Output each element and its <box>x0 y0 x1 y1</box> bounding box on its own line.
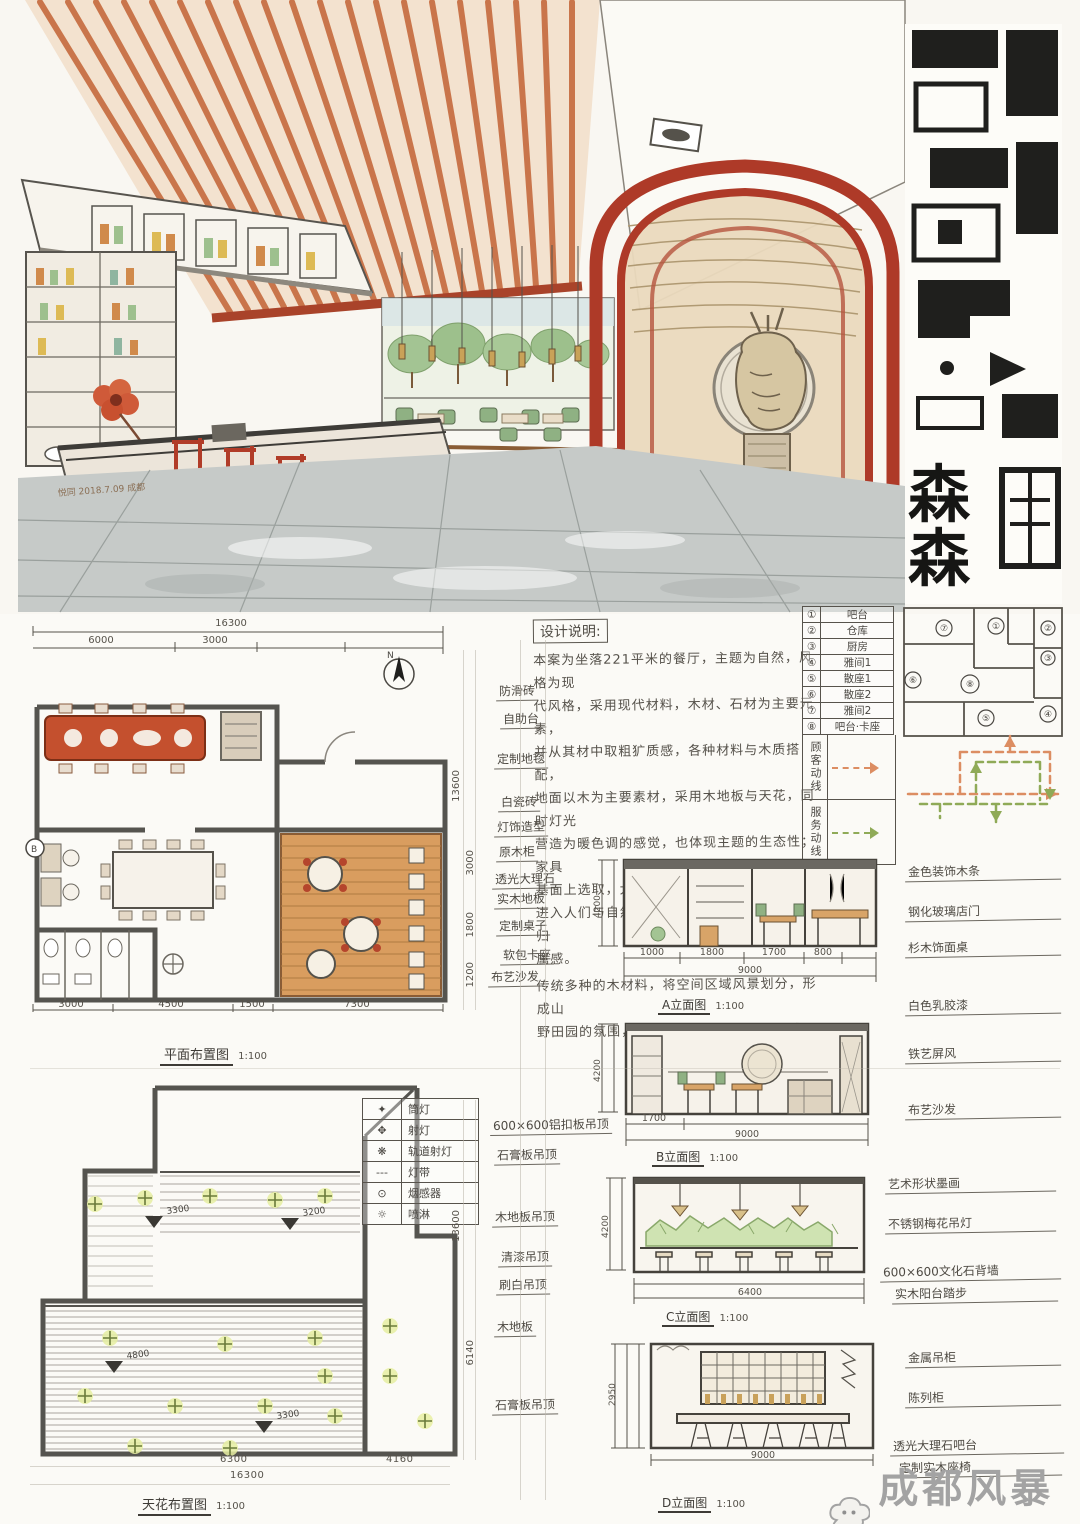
svg-text:6400: 6400 <box>738 1287 762 1298</box>
svg-text:③: ③ <box>1044 654 1052 664</box>
svg-text:9000: 9000 <box>735 1129 759 1140</box>
elevation-b-label: 白色乳胶漆 <box>905 995 1061 1017</box>
elevation-a: 4200 1000 1800 1700 800 9000 <box>592 846 892 998</box>
ceiling-label: 600×600铝扣板吊顶 <box>490 1115 612 1136</box>
downlight-icon: ✦ <box>377 1103 386 1116</box>
elevation-a-label: 钢化玻璃店门 <box>905 901 1061 923</box>
elevation-a-title: A立面图 1:100 <box>658 994 744 1013</box>
ceiling-lights <box>77 1188 433 1456</box>
ceiling-label: 刷白吊顶 <box>496 1276 550 1296</box>
svg-text:1500: 1500 <box>239 999 264 1010</box>
elevation-c: 4200 6400 <box>600 1166 900 1314</box>
plan-dim-total-top: 16300 <box>215 618 247 629</box>
svg-text:N: N <box>387 651 394 661</box>
svg-text:3000: 3000 <box>58 999 83 1010</box>
elevation-a-label: 杉木饰面桌 <box>905 937 1061 959</box>
elevation-b-title: B立面图 1:100 <box>652 1146 738 1165</box>
elevation-d-label: 金属吊柜 <box>905 1347 1061 1369</box>
track-light-icon: ❋ <box>377 1145 386 1158</box>
elevation-d-title: D立面图 1:100 <box>658 1492 745 1511</box>
svg-text:⑦: ⑦ <box>940 624 948 634</box>
customer-route-arrow-icon <box>828 735 895 799</box>
elevation-a-drawing <box>624 860 876 946</box>
ceiling-label: 石膏板吊顶 <box>494 1145 560 1165</box>
plan-dim-seg2: 3000 <box>202 635 227 646</box>
svg-text:1700: 1700 <box>762 947 786 958</box>
svg-text:9000: 9000 <box>738 965 762 976</box>
svg-text:3300: 3300 <box>166 1204 190 1217</box>
guide-line <box>545 640 546 1500</box>
banquet-table <box>45 704 261 773</box>
tile-floor <box>18 446 905 612</box>
elevation-c-label: 艺术形状墨画 <box>885 1173 1056 1195</box>
svg-text:1800: 1800 <box>700 947 724 958</box>
svg-text:7300: 7300 <box>344 999 369 1010</box>
ceiling-dims: 6300 4160 16300 <box>30 1458 470 1498</box>
booth-seats <box>41 844 79 906</box>
elevation-d-label: 透光大理石吧台 <box>890 1434 1064 1456</box>
elevation-c-drawing <box>634 1178 864 1272</box>
svg-text:4200: 4200 <box>593 1059 603 1082</box>
svg-text:3200: 3200 <box>302 1206 326 1219</box>
customer-route-label: 顾客动线 <box>803 735 828 799</box>
svg-text:④: ④ <box>1044 710 1052 720</box>
svg-text:800: 800 <box>814 947 832 958</box>
circulation-arrows <box>908 736 1058 822</box>
watermark: 成都风暴手绘 <box>826 1456 1080 1524</box>
plan-label: 原木柜 <box>496 843 538 863</box>
guide-line <box>520 640 521 1500</box>
svg-text:B: B <box>31 845 37 855</box>
wood-floor-room <box>281 834 441 996</box>
notes-line: 本案为坐落221平米的餐厅，主题为自然，风格为现 <box>533 646 823 695</box>
north-arrow-icon: N <box>384 651 414 689</box>
design-board: { "perspective": { "signature": "悦同 2018… <box>0 0 1080 1524</box>
svg-text:2950: 2950 <box>608 1383 618 1406</box>
elevation-b-label: 布艺沙发 <box>905 1099 1061 1121</box>
svg-text:⑤: ⑤ <box>982 714 990 724</box>
restroom-block <box>43 930 183 1000</box>
function-analysis: ①吧台 ②仓库 ③厨房 ④雅间1 ⑤散座1 ⑥散座2 ⑦雅间2 ⑧吧台·卡座 顾… <box>802 606 896 865</box>
floor-plan-title: 平面布置图 1:100 <box>160 1044 267 1063</box>
elevation-b: 4200 1700 9000 <box>592 1012 892 1152</box>
svg-text:4200: 4200 <box>593 895 603 918</box>
svg-text:①: ① <box>992 622 1000 632</box>
svg-text:⑥: ⑥ <box>909 676 917 686</box>
guide-line <box>30 1068 1060 1069</box>
ceiling-label: 石膏板吊顶 <box>492 1395 558 1415</box>
plan-label: 布艺沙发 <box>488 968 542 988</box>
ceiling-side-dims: 13600 6140 <box>455 1100 485 1460</box>
notes-line: 地面以木为主要素材，采用木地板与天花，同时灯光 <box>535 784 825 833</box>
back-bar-shelves <box>26 252 176 466</box>
svg-text:1000: 1000 <box>640 947 664 958</box>
svg-text:1700: 1700 <box>642 1113 666 1124</box>
perspective-rendering: 森 森 悦同 2018.7.09 成都 <box>0 0 1080 614</box>
elevation-d-label: 陈列柜 <box>905 1387 1061 1409</box>
section-marker: B <box>26 839 44 857</box>
notes-line: 代风格，采用现代材料，木材、石材为主要元素， <box>534 692 824 741</box>
elevation-b-drawing <box>626 1024 868 1114</box>
svg-text:②: ② <box>1044 624 1052 634</box>
ceiling-plan-title: 天花布置图 1:100 <box>138 1494 245 1513</box>
banner-char-2: 森 <box>908 522 971 595</box>
elevation-d-drawing <box>651 1344 873 1448</box>
svg-text:4200: 4200 <box>601 1215 611 1238</box>
plan-label: 防滑砖 <box>496 682 538 702</box>
notes-line: 并从其材中取粗犷质感，各种材料与木质搭配， <box>534 738 824 787</box>
smoke-detector-icon: ⊙ <box>377 1187 386 1200</box>
ceiling-level-marks: 3300 3200 4800 3300 <box>105 1204 326 1433</box>
plan-side-dims: 13600 3000 1800 1200 <box>455 650 485 1010</box>
svg-text:⑧: ⑧ <box>966 680 974 690</box>
plan-dim-seg1: 6000 <box>88 635 113 646</box>
spotlight-icon: ✥ <box>377 1124 386 1137</box>
light-strip-icon: --- <box>376 1166 388 1179</box>
ceiling-label: 木地板 <box>494 1318 536 1338</box>
svg-text:4800: 4800 <box>126 1349 150 1362</box>
storm-cloud-logo-icon <box>826 1488 870 1524</box>
svg-text:9000: 9000 <box>751 1450 775 1461</box>
typography-banner: 森 森 <box>905 24 1062 604</box>
elevation-b-label: 铁艺屏风 <box>905 1043 1061 1065</box>
svg-text:4500: 4500 <box>158 999 183 1010</box>
center-table <box>101 840 225 920</box>
elevation-c-label: 不锈钢梅花吊灯 <box>885 1213 1056 1235</box>
floor-plan: 16300 6000 3000 N <box>25 612 470 1012</box>
bubble-diagram: ① ② ③ ④ ⑤ ⑥ ⑦ ⑧ <box>900 604 1068 826</box>
elevation-a-label: 金色装饰木条 <box>905 861 1061 883</box>
watermark-text: 成都风暴手绘 <box>878 1456 1080 1524</box>
banner-char-1: 森 <box>908 458 971 531</box>
svg-text:3300: 3300 <box>276 1409 300 1422</box>
room-index-table: ①吧台 ②仓库 ③厨房 ④雅间1 ⑤散座1 ⑥散座2 ⑦雅间2 ⑧吧台·卡座 <box>802 606 894 735</box>
sprinkler-icon: ☼ <box>377 1208 387 1221</box>
elevation-c-title: C立面图 1:100 <box>662 1306 748 1325</box>
elevation-c-label: 实木阳台踏步 <box>892 1283 1058 1305</box>
ceiling-label: 木地板吊顶 <box>492 1207 558 1227</box>
elevation-c-label: 600×600文化石背墙 <box>880 1260 1061 1282</box>
